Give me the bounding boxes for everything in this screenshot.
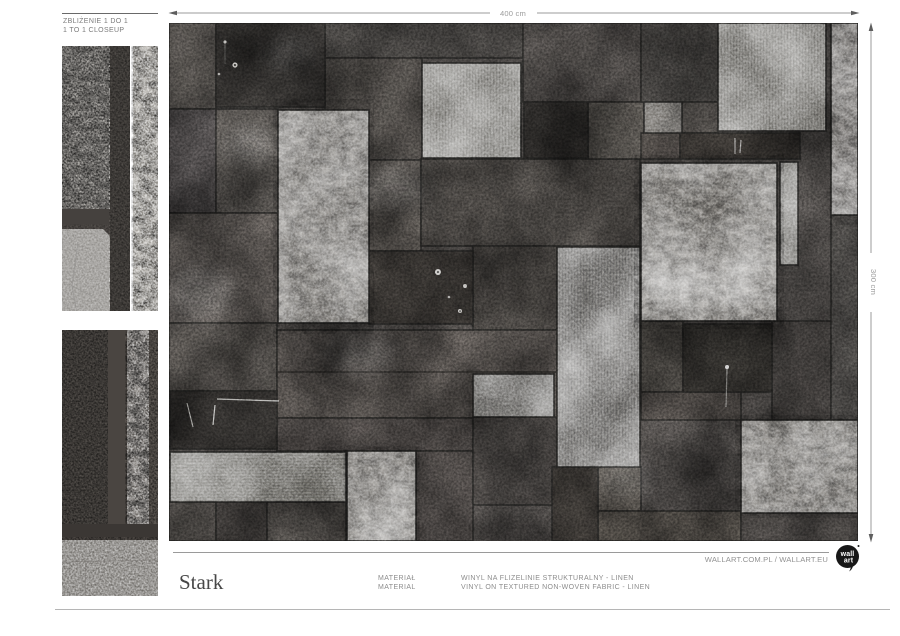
svg-text:art: art — [844, 558, 854, 565]
svg-text:300 cm: 300 cm — [869, 269, 878, 295]
svg-text:400 cm: 400 cm — [500, 9, 526, 18]
